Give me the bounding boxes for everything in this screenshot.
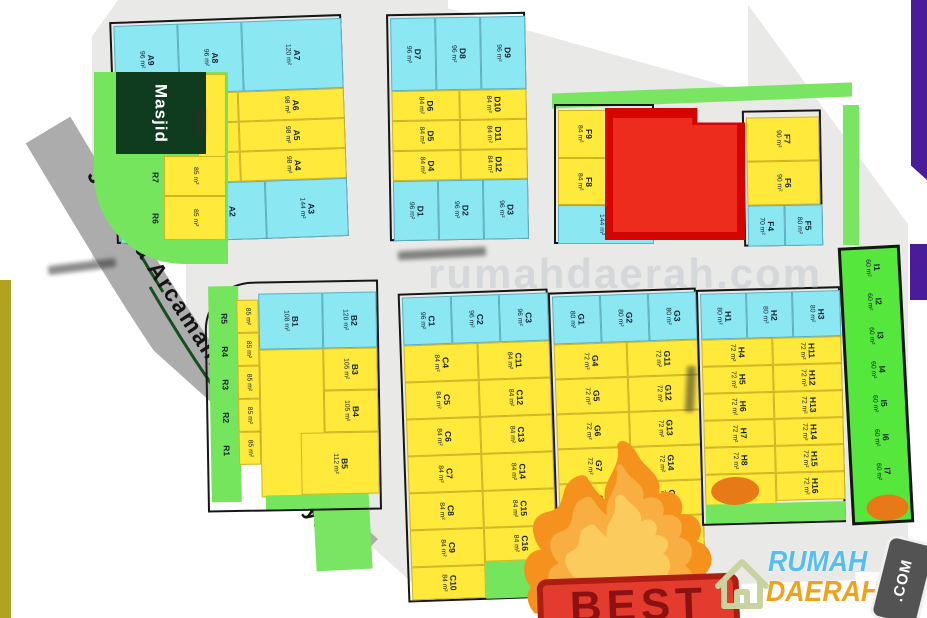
plot-cell: 85 m² xyxy=(164,196,226,240)
plot-D9: D996 m² xyxy=(480,16,526,90)
plot-C2: C296 m² xyxy=(451,294,501,344)
plot-A3: A3144 m² xyxy=(265,178,349,239)
plot-R4: R4 xyxy=(215,335,234,367)
plot-F7: F790 m² xyxy=(746,116,820,161)
plot-G3: G380 m² xyxy=(648,292,698,342)
plot-H4: H472 m² xyxy=(701,338,773,367)
plot-cell: 85 m² xyxy=(164,156,226,196)
plot-H15: H1572 m² xyxy=(775,444,845,473)
logo-word-rumah: RUMAH xyxy=(768,546,867,579)
plot-cell: 85 m² xyxy=(237,333,260,366)
logo-com-text: .COM xyxy=(890,558,917,604)
plot-D11: D1184 m² xyxy=(460,119,528,150)
plot-H5: H572 m² xyxy=(702,365,774,394)
plot-C10: C1084 m² xyxy=(411,565,486,601)
plot-H6: H672 m² xyxy=(703,392,775,421)
plot-C8: C884 m² xyxy=(409,491,484,531)
plot-C12: C1284 m² xyxy=(479,377,552,416)
purple-bar xyxy=(910,244,927,300)
block-D: D796 m²D896 m²D996 m²D684 m²D584 m²D484 … xyxy=(386,12,529,241)
plot-F8: F884 m² xyxy=(558,158,611,205)
plot-G4: G472 m² xyxy=(554,342,628,380)
best-banner-text: BEST xyxy=(569,582,708,618)
plot-D1: D196 m² xyxy=(393,180,439,241)
plot-F4: F470 m² xyxy=(747,205,785,247)
plot-cell: 85 m² xyxy=(237,366,260,399)
plot-cell xyxy=(706,501,846,524)
plot-cell xyxy=(266,494,330,509)
plot-F6: F690 m² xyxy=(747,160,821,205)
plot-G5: G572 m² xyxy=(555,377,629,415)
plot-C1: C196 m² xyxy=(402,296,453,346)
plot-A6: A698 m² xyxy=(238,88,345,122)
plot-H2: H280 m² xyxy=(746,291,793,338)
red-block xyxy=(605,108,745,240)
plot-G2: G280 m² xyxy=(600,293,650,343)
purple-bar xyxy=(911,0,927,180)
plot-R2: R2 xyxy=(216,401,235,433)
plot-I7: I760 m² xyxy=(855,453,912,490)
plot-C3: C396 m² xyxy=(499,292,550,342)
plot-A4: A498 m² xyxy=(240,148,347,182)
plot-C6: C684 m² xyxy=(406,417,481,457)
plot-D12: D1284 m² xyxy=(460,149,528,180)
plot-R1: R1 xyxy=(217,434,236,466)
block-FR: F790 m²F690 m²F470 m²F580 m² xyxy=(742,109,823,246)
plot-H13: H1372 m² xyxy=(774,390,844,419)
plot-A5: A598 m² xyxy=(239,118,346,152)
plot-R3: R3 xyxy=(216,368,235,400)
site-plan: Jl. Raya Arcamanik - Sindanglaya A996 m²… xyxy=(0,0,927,618)
plot-F5: F580 m² xyxy=(784,204,823,246)
plot-D6: D684 m² xyxy=(391,90,460,121)
plot-H1: H180 m² xyxy=(700,293,747,340)
plot-A7: A7120 m² xyxy=(241,18,343,91)
plot-D10: D1084 m² xyxy=(459,89,527,120)
house-icon xyxy=(710,550,774,614)
plot-B1: B1108 m² xyxy=(258,292,323,349)
plot-H14: H1472 m² xyxy=(774,417,844,446)
plot-I3: I360 m² xyxy=(848,318,905,355)
plot-F9: F984 m² xyxy=(558,110,611,158)
plot-C7: C784 m² xyxy=(407,454,482,494)
plot-B2: B2120 m² xyxy=(322,292,377,349)
masjid-label: Masjid xyxy=(151,84,170,143)
plot-D8: D896 m² xyxy=(435,17,481,91)
plot-H11: H1172 m² xyxy=(772,336,842,365)
plot-C9: C984 m² xyxy=(410,528,485,568)
plot-I1: I160 m² xyxy=(844,250,901,287)
plot-I2: I260 m² xyxy=(846,284,903,321)
illegible-street-label xyxy=(196,108,204,134)
plot-D2: D296 m² xyxy=(438,180,484,241)
plot-H12: H1272 m² xyxy=(773,363,843,392)
masjid-block: Masjid xyxy=(116,72,206,154)
plot-I4: I460 m² xyxy=(849,351,906,388)
plot-cell: 85 m² xyxy=(238,399,261,432)
plot-cell: 85 m² xyxy=(239,432,262,465)
plot-D4: D484 m² xyxy=(392,150,461,181)
plot-H16: H1672 m² xyxy=(776,471,846,501)
plot-D5: D584 m² xyxy=(392,120,461,151)
plot-D3: D396 m² xyxy=(483,179,529,240)
plot-I5: I560 m² xyxy=(851,385,908,422)
plot-R5: R5 xyxy=(214,302,233,334)
plot-C4: C484 m² xyxy=(403,343,478,383)
red-block-fill xyxy=(613,118,737,232)
watermark: rumahdaerah.com xyxy=(428,250,822,298)
plot-B5: B5112 m² xyxy=(301,432,380,495)
plot-G1: G180 m² xyxy=(552,295,602,345)
olive-bar xyxy=(0,280,11,618)
block-I: I160 m²I260 m²I360 m²I460 m²I560 m²I660 … xyxy=(838,245,914,526)
plot-D7: D796 m² xyxy=(390,17,436,91)
plot-C11: C1184 m² xyxy=(477,340,550,379)
plot-R7: R7 xyxy=(146,158,163,196)
block-B: 85 m²85 m²85 m²85 m²85 m²R5R4R3R2R1B1108… xyxy=(204,279,382,512)
logo-word-daerah: DAERAH xyxy=(766,576,880,609)
plot-I6: I660 m² xyxy=(853,419,910,456)
plot-B4: B4105 m² xyxy=(324,390,379,433)
plot-B3: B3105 m² xyxy=(323,348,378,391)
plot-R6: R6 xyxy=(146,198,163,238)
plot-C5: C584 m² xyxy=(405,380,480,420)
plot-cell: 85 m² xyxy=(236,300,259,333)
